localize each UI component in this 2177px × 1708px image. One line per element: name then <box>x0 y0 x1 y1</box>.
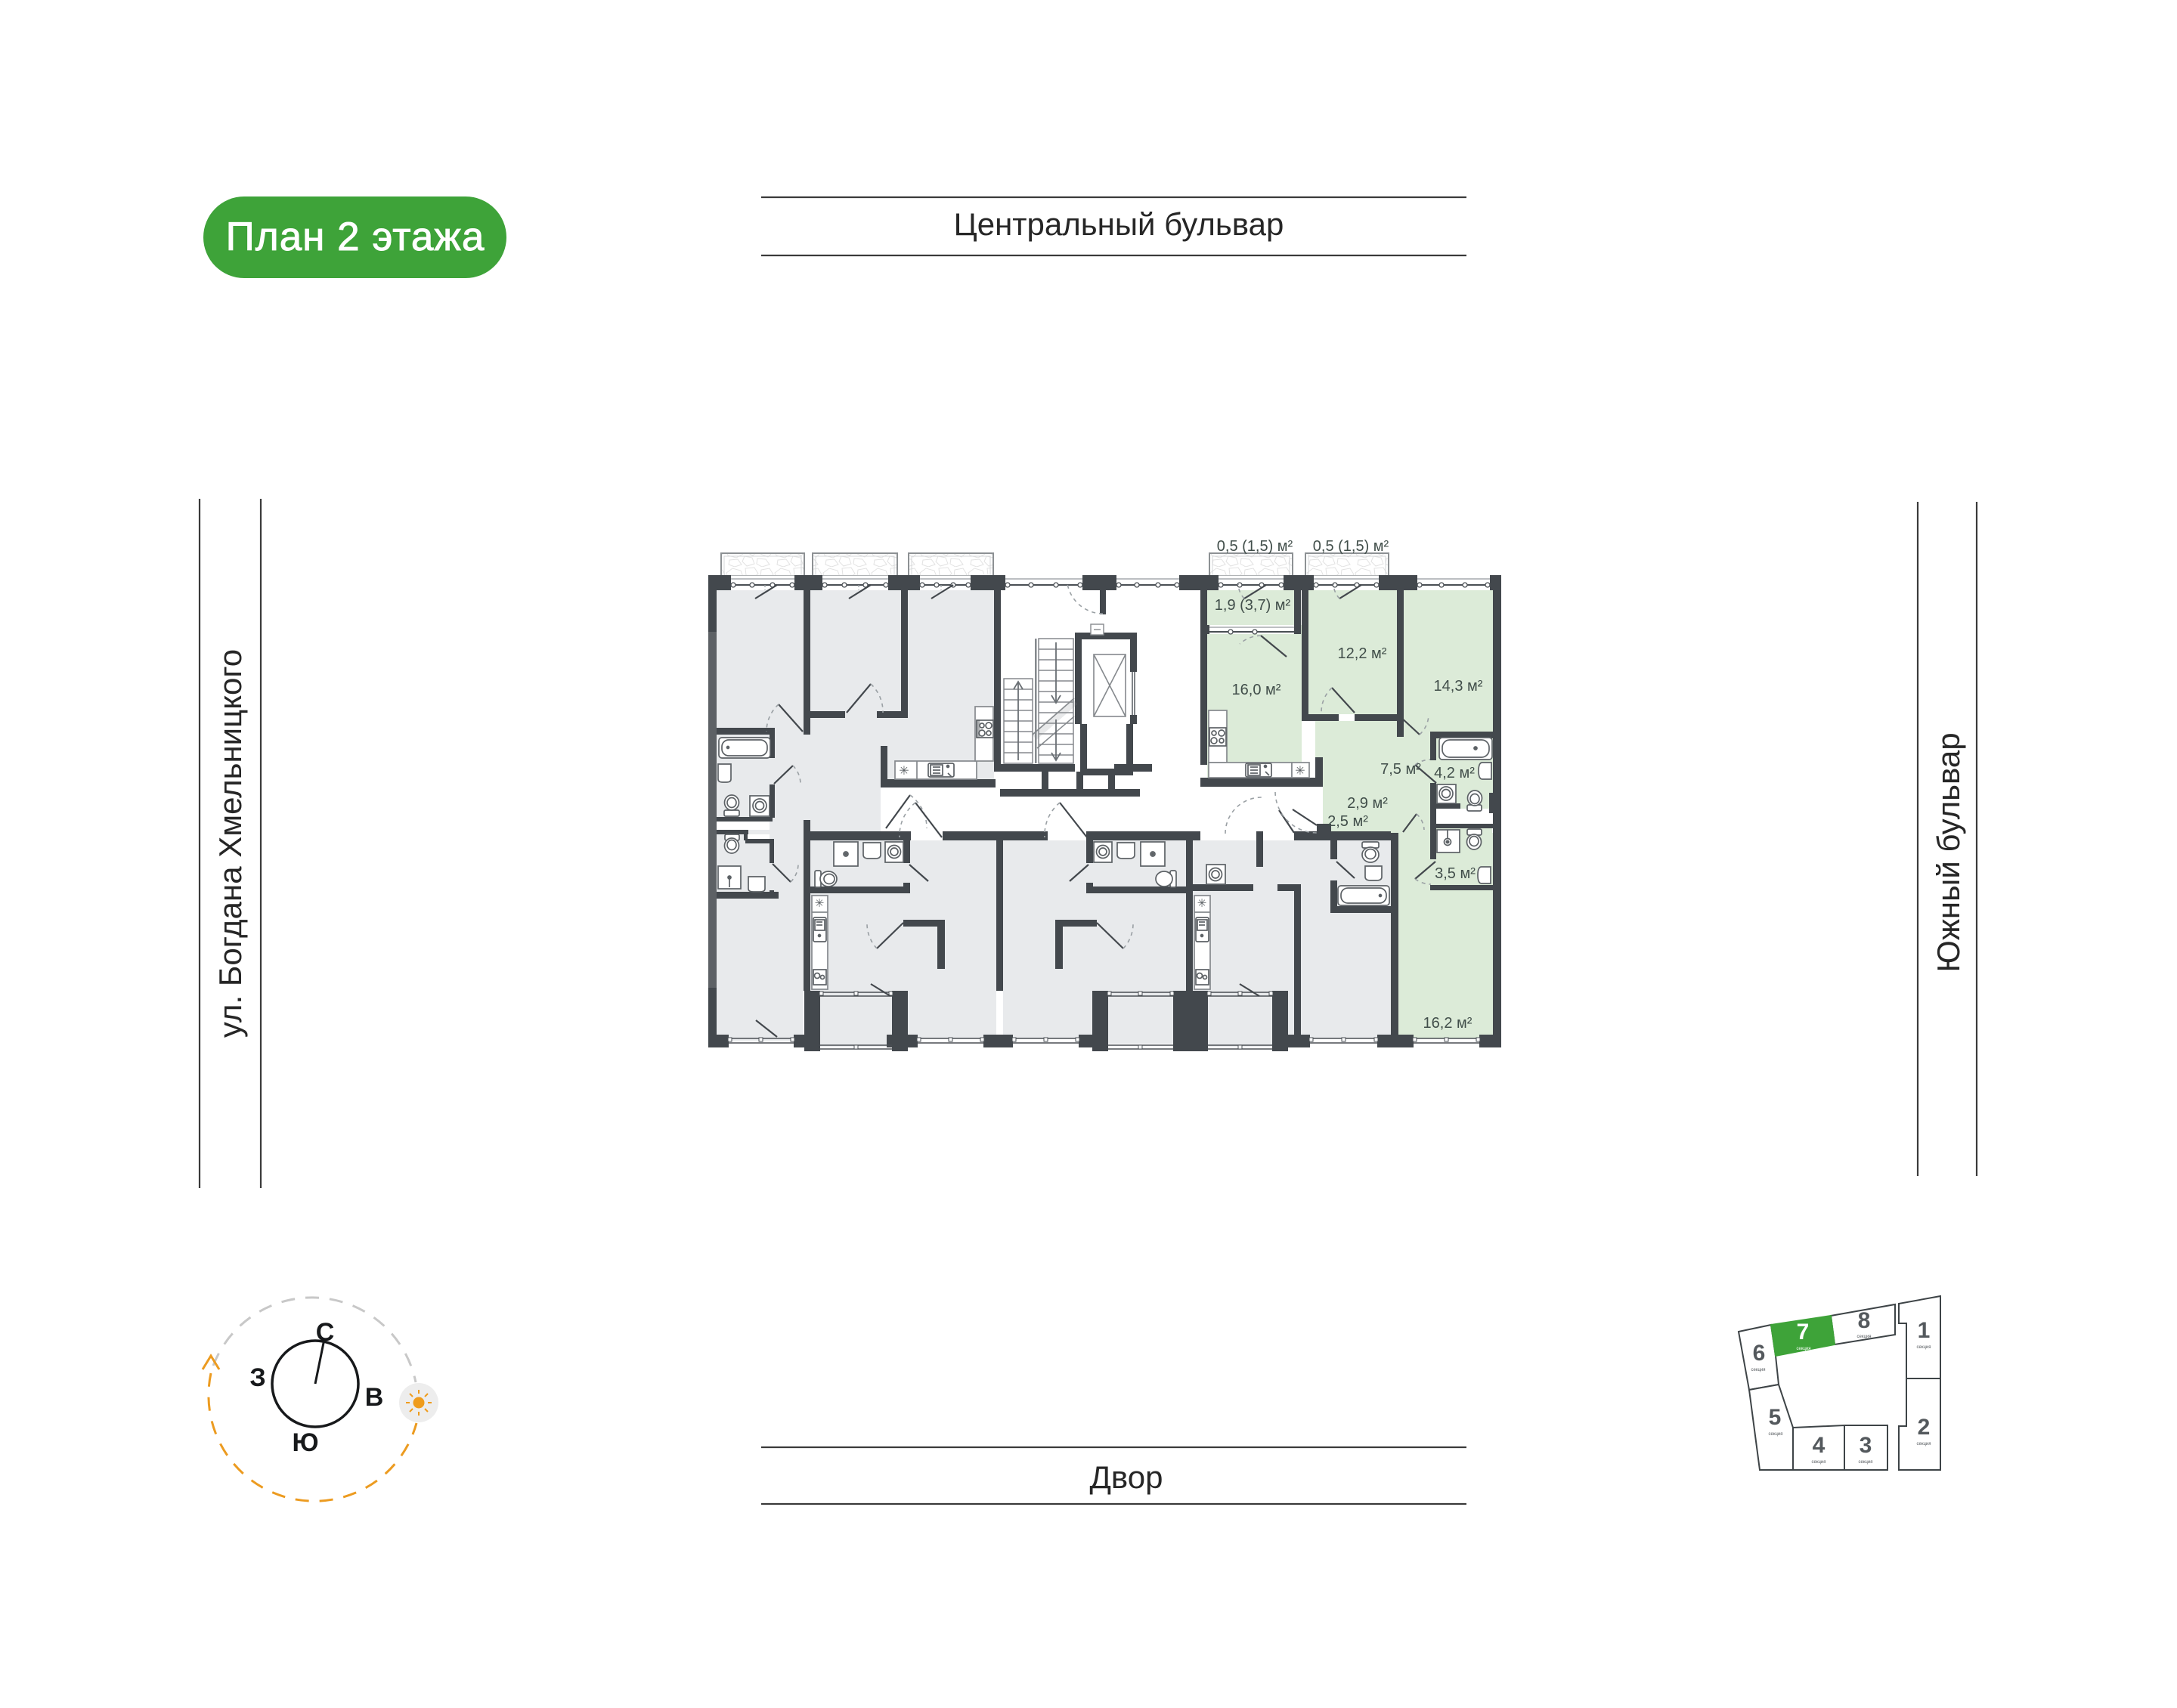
svg-text:секция: секция <box>1859 1460 1873 1465</box>
svg-text:12,2 м²: 12,2 м² <box>1338 645 1387 662</box>
svg-text:План 2 этажа: План 2 этажа <box>226 215 485 259</box>
svg-text:14,3 м²: 14,3 м² <box>1434 678 1483 695</box>
svg-text:секция: секция <box>1917 1345 1931 1350</box>
svg-text:1: 1 <box>1918 1318 1931 1343</box>
svg-text:4: 4 <box>1813 1433 1826 1458</box>
svg-text:4,2 м²: 4,2 м² <box>1434 765 1475 781</box>
svg-text:8: 8 <box>1858 1308 1871 1333</box>
svg-text:5: 5 <box>1769 1405 1782 1430</box>
svg-text:ул. Богдана Хмельницкого: ул. Богдана Хмельницкого <box>212 649 248 1038</box>
svg-text:2,5 м²: 2,5 м² <box>1327 813 1368 830</box>
svg-text:7,5 м²: 7,5 м² <box>1380 761 1421 778</box>
svg-text:✳: ✳ <box>899 765 909 778</box>
svg-text:16,2 м²: 16,2 м² <box>1423 1015 1472 1032</box>
svg-text:3,5 м²: 3,5 м² <box>1435 865 1476 882</box>
svg-text:✳: ✳ <box>1295 765 1305 778</box>
svg-text:секция: секция <box>1917 1442 1931 1447</box>
svg-text:секция: секция <box>1769 1432 1783 1437</box>
svg-text:0,5 (1,5) м²: 0,5 (1,5) м² <box>1217 538 1293 555</box>
svg-text:✳: ✳ <box>1197 897 1207 910</box>
svg-text:6: 6 <box>1753 1341 1766 1366</box>
svg-text:3: 3 <box>1860 1433 1872 1458</box>
svg-text:секция: секция <box>1812 1460 1826 1465</box>
svg-text:С: С <box>316 1318 335 1347</box>
svg-text:2: 2 <box>1918 1415 1931 1440</box>
svg-text:секция: секция <box>1797 1347 1811 1351</box>
svg-text:В: В <box>365 1383 384 1412</box>
svg-text:Двор: Двор <box>1089 1459 1163 1495</box>
svg-text:секция: секция <box>1751 1368 1766 1372</box>
svg-text:Ю: Ю <box>292 1428 318 1457</box>
svg-text:7: 7 <box>1797 1320 1810 1344</box>
svg-text:Центральный бульвар: Центральный бульвар <box>954 206 1284 242</box>
svg-text:0,5 (1,5) м²: 0,5 (1,5) м² <box>1313 538 1389 555</box>
svg-text:16,0 м²: 16,0 м² <box>1232 682 1281 698</box>
svg-text:1,9 (3,7) м²: 1,9 (3,7) м² <box>1215 597 1291 614</box>
svg-text:З: З <box>249 1363 265 1392</box>
svg-text:секция: секция <box>1857 1335 1872 1339</box>
svg-text:Южный бульвар: Южный бульвар <box>1931 732 1966 972</box>
svg-text:✳: ✳ <box>815 897 825 910</box>
svg-text:2,9 м²: 2,9 м² <box>1347 795 1388 812</box>
